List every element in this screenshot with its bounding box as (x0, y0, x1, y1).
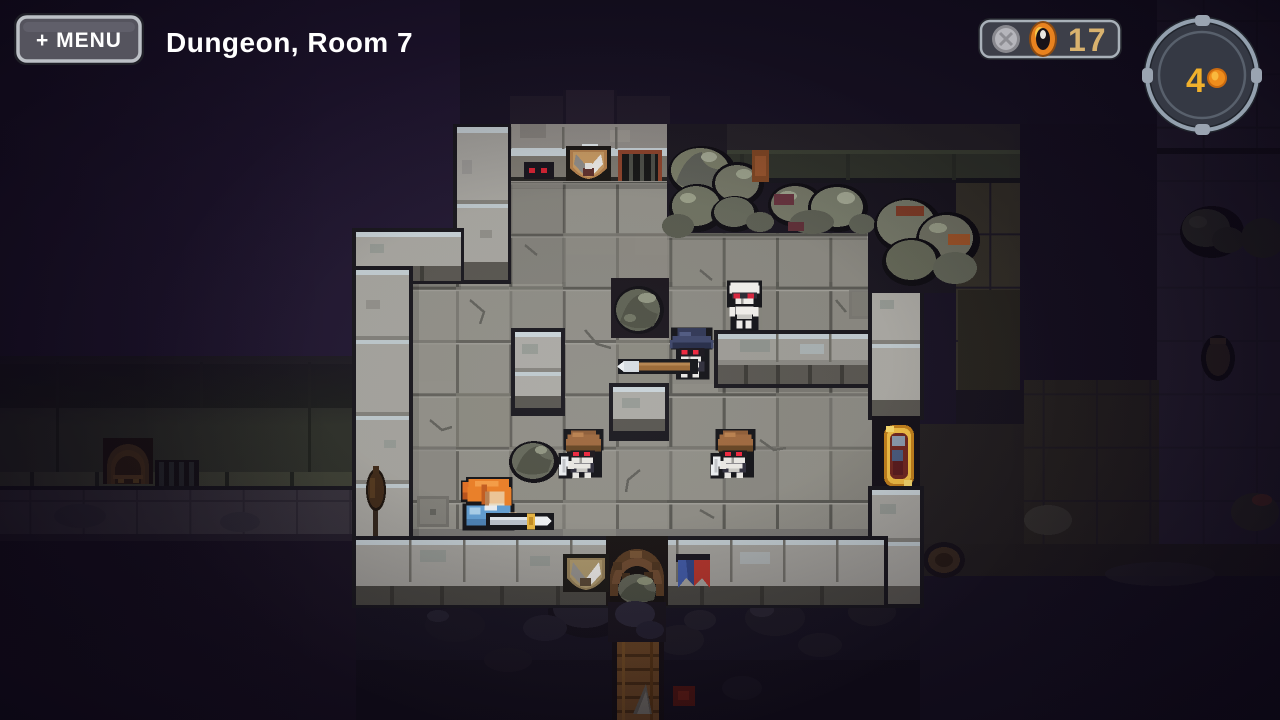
svg-text:4: 4 (1186, 62, 1205, 100)
svg-text:+ MENU: + MENU (36, 29, 122, 52)
svg-text:17: 17 (1068, 22, 1108, 58)
svg-text:Dungeon, Room 7: Dungeon, Room 7 (166, 27, 413, 58)
